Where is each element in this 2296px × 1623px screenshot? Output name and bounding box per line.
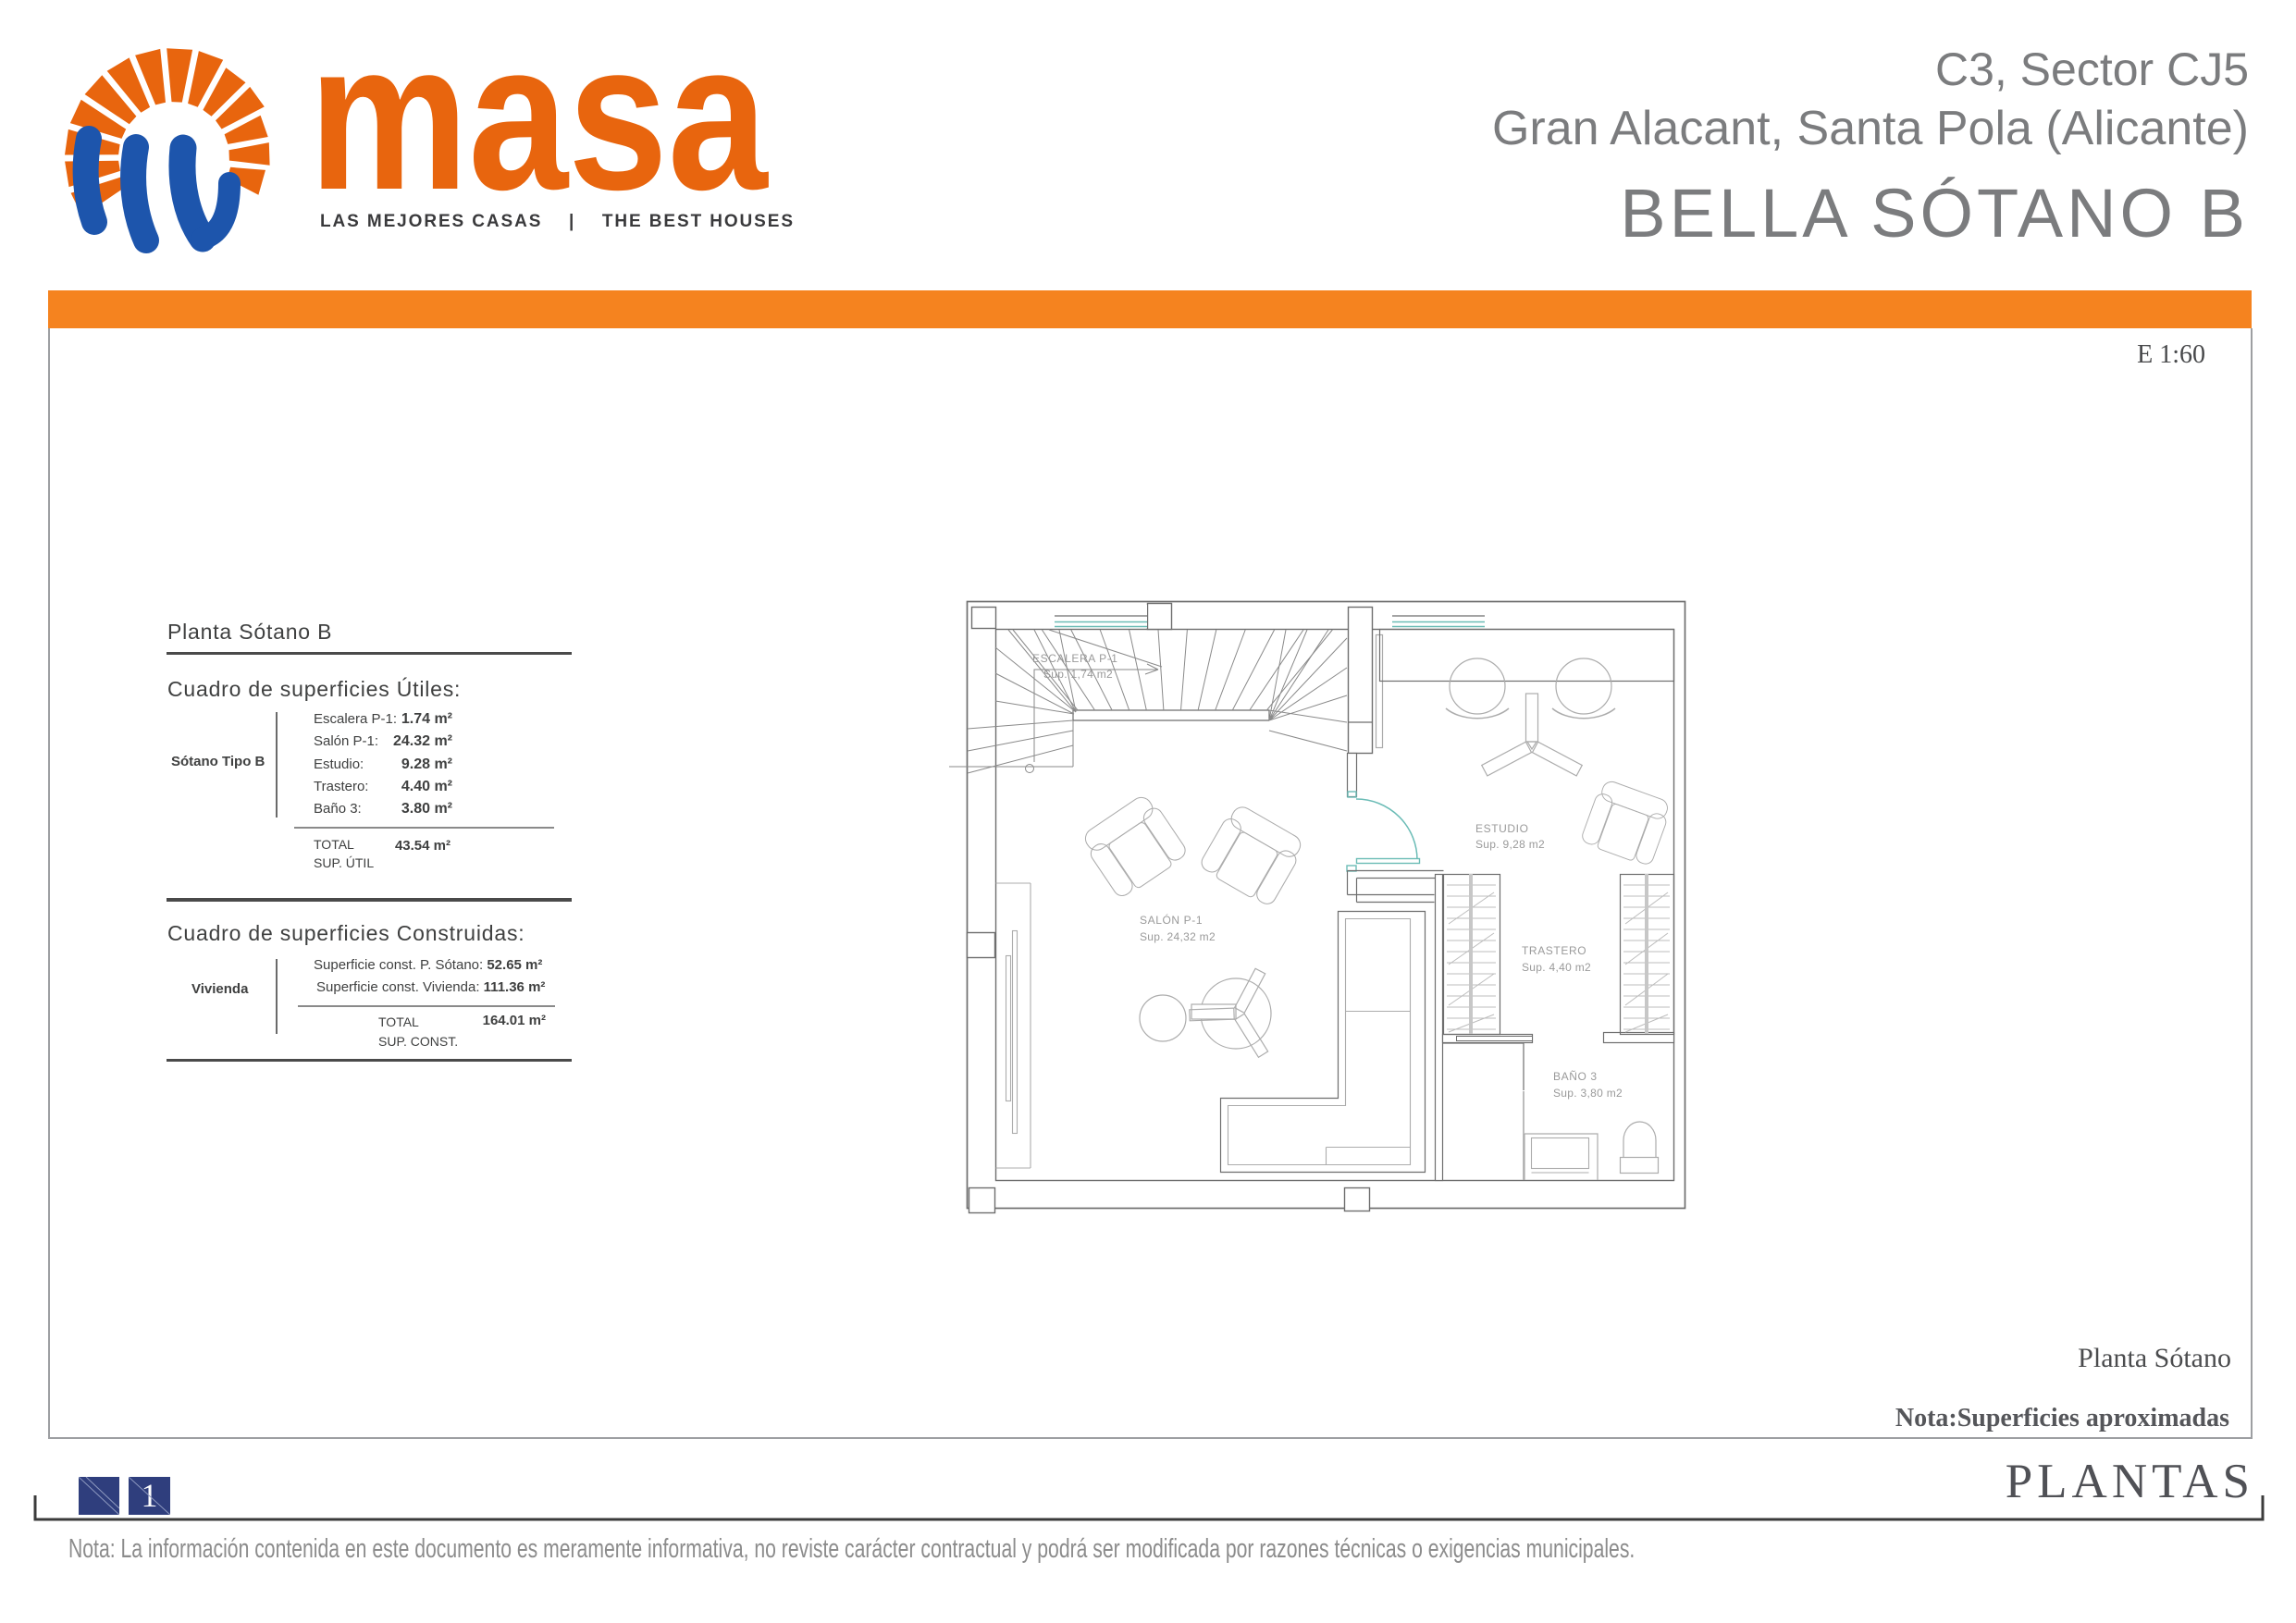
svg-text:SALÓN P-1: SALÓN P-1 xyxy=(1140,913,1203,927)
svg-text:Sup. 3,80 m2: Sup. 3,80 m2 xyxy=(1553,1087,1623,1100)
svg-text:Sup. 24,32 m2: Sup. 24,32 m2 xyxy=(1140,930,1216,943)
svg-text:ESCALERA P-1: ESCALERA P-1 xyxy=(1032,652,1118,665)
svg-text:BAÑO 3: BAÑO 3 xyxy=(1553,1070,1598,1083)
svg-text:Sup. 4,40 m2: Sup. 4,40 m2 xyxy=(1522,961,1591,974)
svg-text:masa: masa xyxy=(315,28,770,203)
svg-text:TRASTERO: TRASTERO xyxy=(1522,944,1586,957)
svg-text:Sup. 9,28 m2: Sup. 9,28 m2 xyxy=(1475,838,1545,851)
svg-text:Sup. 1,74 m2: Sup. 1,74 m2 xyxy=(1043,668,1113,681)
svg-text:ESTUDIO: ESTUDIO xyxy=(1475,822,1529,835)
